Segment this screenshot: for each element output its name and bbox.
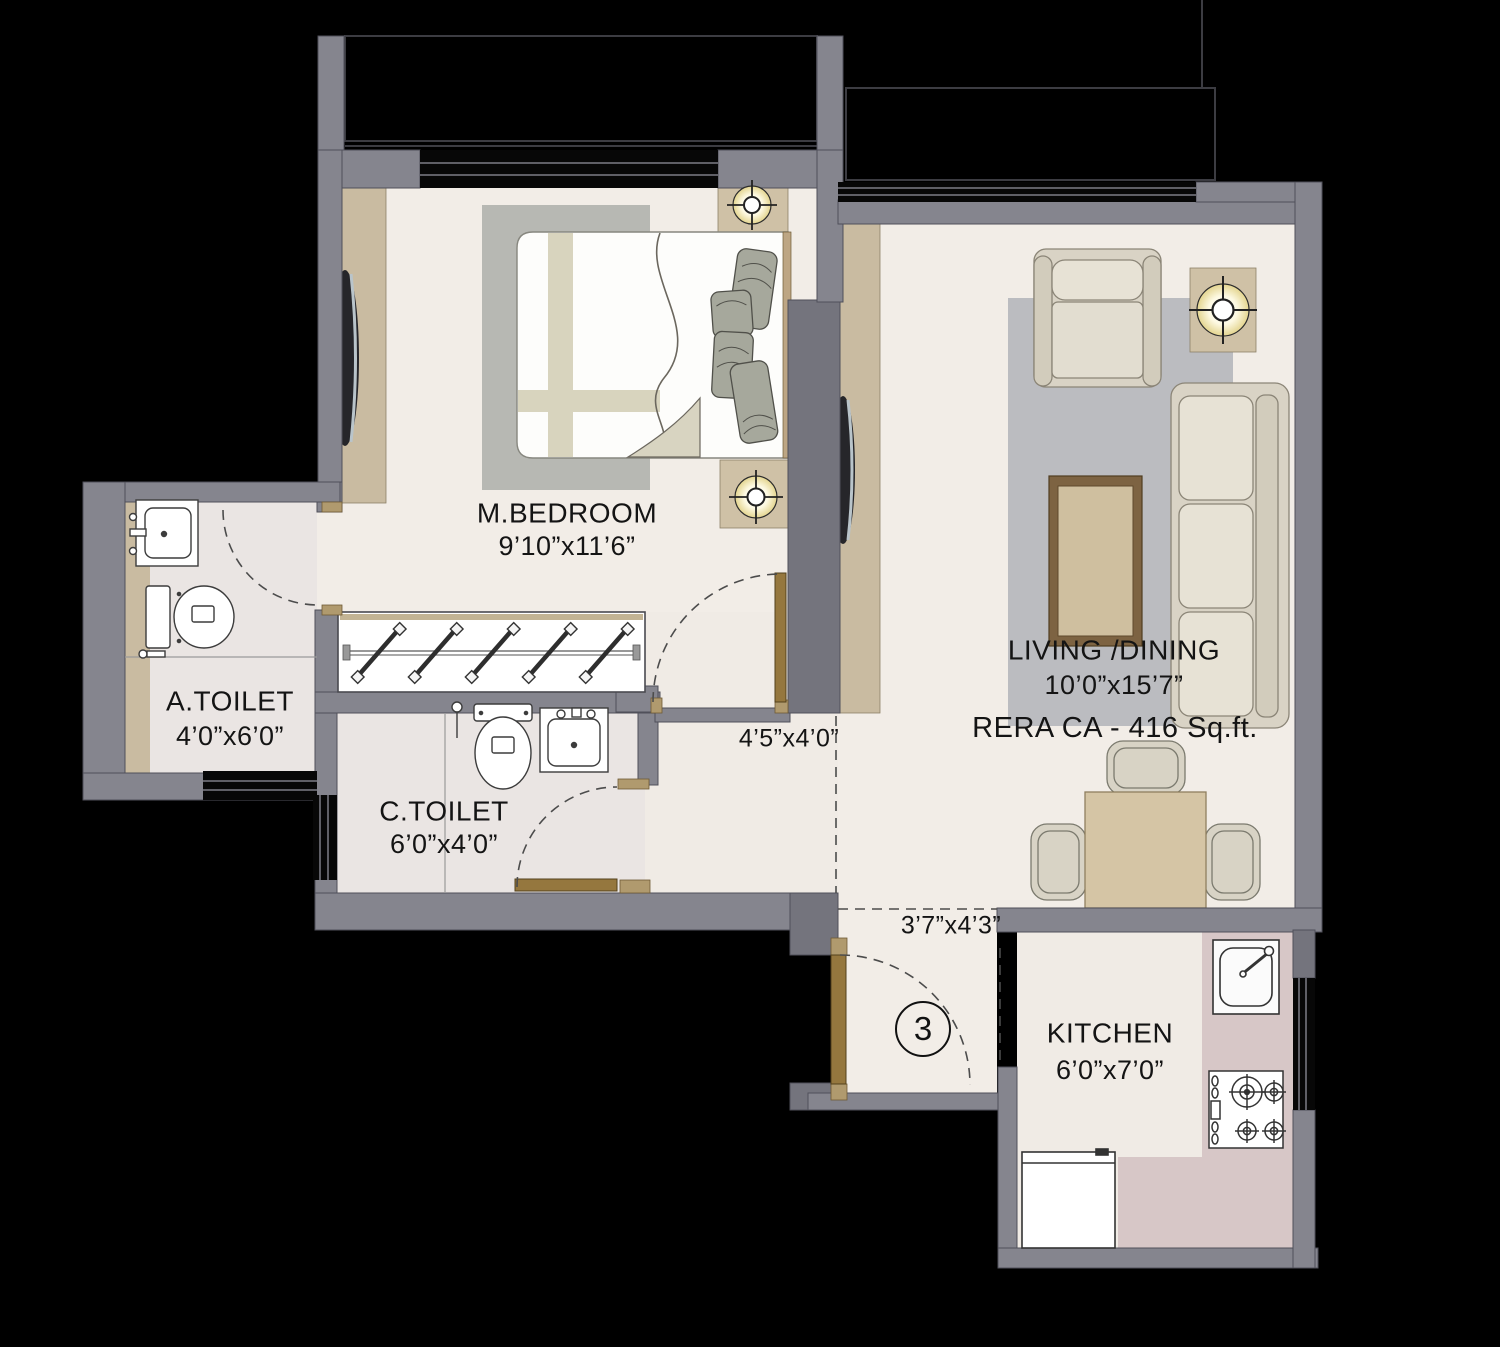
kitchen-sink-icon: [1213, 940, 1279, 1014]
unit-number-badge: 3: [895, 1001, 951, 1057]
living-dining-label: LIVING /DINING: [1008, 633, 1220, 668]
wall: [998, 1248, 1318, 1268]
washbasin-icon: [540, 708, 608, 772]
wall: [1293, 930, 1315, 978]
living-dining-dimensions: 10’0”x15’7”: [1044, 669, 1183, 703]
dining-table: [1085, 792, 1206, 908]
wall: [315, 610, 338, 694]
living-window: [838, 182, 1196, 202]
bedroom-door-leaf: [775, 573, 786, 702]
a-toilet-dimensions: 4’0”x6’0”: [176, 720, 284, 754]
bedroom-window: [420, 150, 718, 188]
c-toilet-dimensions: 6’0”x4’0”: [390, 828, 498, 862]
wardrobe-trim: [340, 614, 643, 620]
c-toilet-door-leaf: [515, 879, 617, 891]
kitchen-label: KITCHEN: [1047, 1016, 1173, 1051]
dining-chair: [1031, 824, 1086, 900]
pillow: [710, 290, 753, 339]
toilet-icon: [474, 704, 532, 789]
wall: [83, 482, 125, 800]
dining-chair: [1107, 741, 1185, 795]
kitchen-window: [1293, 978, 1315, 1110]
dining-chair: [1205, 824, 1260, 900]
m-bedroom-dimensions: 9’10”x11’6”: [498, 530, 635, 564]
passage-dimensions: 4’5”x4’0”: [739, 723, 839, 754]
coffee-table: [1049, 476, 1142, 646]
washbasin-icon: [130, 500, 199, 566]
floor-plan: M.BEDROOM 9’10”x11’6” A.TOILET 4’0”x6’0”…: [0, 0, 1500, 1347]
c-toilet-label: C.TOILET: [379, 794, 509, 829]
wall: [318, 150, 342, 512]
wall: [655, 708, 790, 722]
wall: [315, 893, 790, 930]
refrigerator-icon: [1022, 1149, 1115, 1248]
gas-stove-icon: [1209, 1071, 1286, 1148]
bed-stripe-horizontal: [518, 390, 660, 412]
wall: [838, 200, 1322, 224]
wall: [318, 36, 344, 152]
floor-plan-canvas: [0, 0, 1500, 1347]
wardrobe: [338, 612, 645, 692]
wall: [1293, 1110, 1315, 1268]
wall: [998, 1067, 1017, 1248]
bed: [517, 232, 791, 458]
wall: [997, 908, 1322, 932]
a-toilet-label: A.TOILET: [166, 684, 294, 719]
m-bedroom-label: M.BEDROOM: [477, 496, 657, 531]
sofa: [1171, 383, 1289, 728]
wall: [638, 713, 658, 785]
wall: [788, 300, 840, 713]
kitchen-dimensions: 6’0”x7’0”: [1056, 1054, 1164, 1088]
a-toilet-window: [203, 771, 317, 800]
toilet-doorway-floor: [317, 502, 342, 612]
foyer-dimensions: 3’7”x4’3”: [901, 910, 1001, 941]
unit-number: 3: [914, 1010, 932, 1048]
armchair: [1034, 249, 1161, 387]
bed-stripe-vertical: [548, 233, 573, 457]
wall: [1295, 182, 1322, 908]
wall: [817, 150, 843, 302]
rera-carpet-area: RERA CA - 416 Sq.ft.: [972, 710, 1258, 746]
c-toilet-window: [313, 795, 337, 880]
entry-door-leaf: [831, 955, 846, 1084]
wall: [817, 36, 843, 152]
